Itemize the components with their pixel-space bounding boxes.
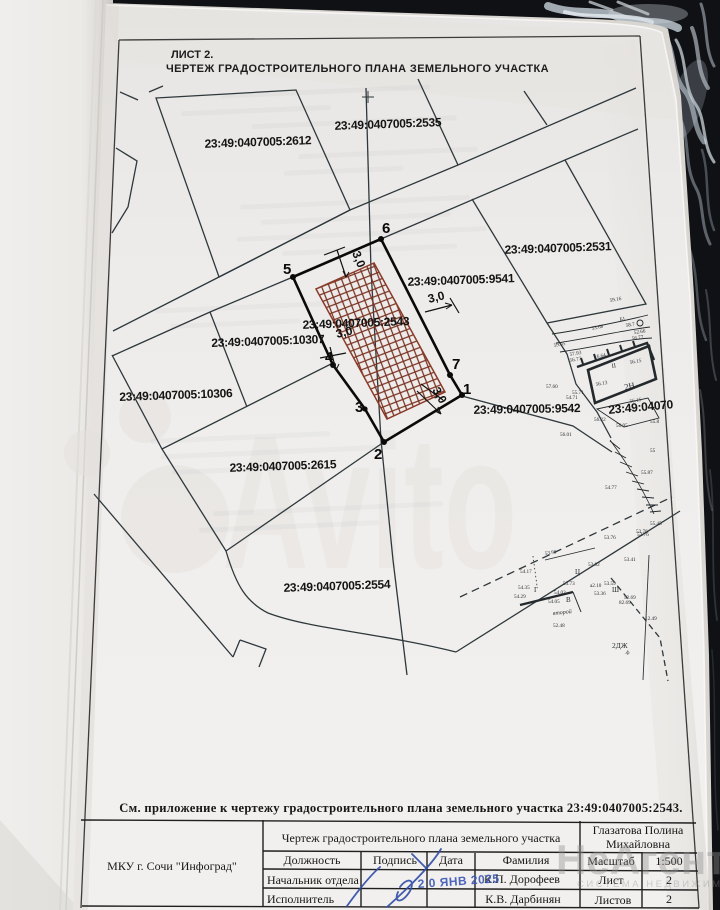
- svg-text:12.49: 12.49: [645, 616, 657, 622]
- svg-text:53.82: 53.82: [588, 562, 600, 568]
- svg-text:7: 7: [452, 356, 460, 373]
- svg-text:НеАгент: НеАгент: [556, 836, 720, 883]
- svg-text:5: 5: [283, 261, 291, 278]
- svg-text:Дата: Дата: [439, 853, 464, 867]
- svg-text:54.17: 54.17: [520, 569, 532, 575]
- svg-text:1: 1: [463, 381, 471, 398]
- svg-text:57.60: 57.60: [546, 384, 558, 390]
- svg-text:2Н: 2Н: [623, 380, 635, 392]
- svg-text:53.76: 53.76: [604, 535, 616, 541]
- svg-text:2: 2: [374, 446, 382, 463]
- svg-text:53.73: 53.73: [563, 581, 575, 587]
- svg-text:Начальник отдела: Начальник отдела: [267, 873, 359, 887]
- svg-text:Чертеж градостроительного план: Чертеж градостроительного плана земельно…: [282, 831, 561, 845]
- svg-text:Ц: Ц: [575, 568, 580, 576]
- svg-text:23:49:0407005:9542: 23:49:0407005:9542: [473, 401, 581, 417]
- svg-text:.ф: .ф: [625, 651, 630, 656]
- svg-text:56.22: 56.22: [594, 417, 606, 423]
- svg-text:54.35: 54.35: [518, 585, 530, 591]
- svg-text:54.77: 54.77: [605, 485, 617, 491]
- svg-text:ЧЕРТЕЖ ГРАДОСТРОИТЕЛЬНОГО ПЛА: ЧЕРТЕЖ ГРАДОСТРОИТЕЛЬНОГО ПЛАНА ЗЕМЕЛЬНО…: [166, 63, 549, 75]
- svg-text:Ш: Ш: [612, 586, 619, 594]
- svg-text:ЛИСТ 2.: ЛИСТ 2.: [171, 49, 213, 61]
- svg-text:Фамилия: Фамилия: [503, 853, 550, 867]
- svg-text:В: В: [566, 596, 571, 604]
- svg-text:55.45: 55.45: [650, 521, 662, 527]
- svg-text:82.69: 82.69: [619, 600, 631, 606]
- svg-text:СИСТЕМА НЕДВИЖИМОСТИ: СИСТЕМА НЕДВИЖИМОСТИ: [577, 879, 720, 890]
- svg-text:МКУ г. Сочи "Инфоград": МКУ г. Сочи "Инфоград": [107, 859, 237, 873]
- svg-text:Исполнитель: Исполнитель: [267, 892, 335, 906]
- svg-text:3: 3: [355, 399, 363, 416]
- svg-text:Должность: Должность: [283, 853, 341, 867]
- svg-text:56.95: 56.95: [616, 423, 628, 429]
- svg-text:6: 6: [382, 220, 390, 237]
- svg-text:55.87: 55.87: [641, 470, 653, 476]
- svg-text:53.36: 53.36: [594, 591, 606, 597]
- svg-text:55.71: 55.71: [572, 390, 584, 396]
- svg-text:К.В. Дарбинян: К.В. Дарбинян: [485, 892, 561, 906]
- svg-text:Г: Г: [534, 586, 538, 594]
- svg-text:55: 55: [650, 448, 656, 454]
- svg-text:54.29: 54.29: [514, 594, 526, 600]
- svg-text:52.48: 52.48: [553, 623, 565, 629]
- svg-text:а2.10: а2.10: [590, 583, 602, 589]
- svg-text:54.02: 54.02: [554, 590, 566, 596]
- svg-text:56.01: 56.01: [560, 432, 572, 438]
- svg-text:Глазатова Полина: Глазатова Полина: [593, 823, 684, 837]
- svg-text:54.05: 54.05: [548, 599, 560, 605]
- svg-text:2: 2: [666, 892, 672, 906]
- svg-text:Подпись: Подпись: [373, 853, 418, 867]
- svg-text:Листов: Листов: [595, 893, 632, 907]
- svg-text:2ДЖ: 2ДЖ: [612, 641, 628, 650]
- svg-text:См. приложение к чертежу градо: См. приложение к чертежу градостроительн…: [119, 801, 683, 815]
- svg-text:53.76: 53.76: [636, 529, 648, 535]
- svg-text:55.8: 55.8: [650, 419, 659, 425]
- svg-text:53.41: 53.41: [624, 557, 636, 563]
